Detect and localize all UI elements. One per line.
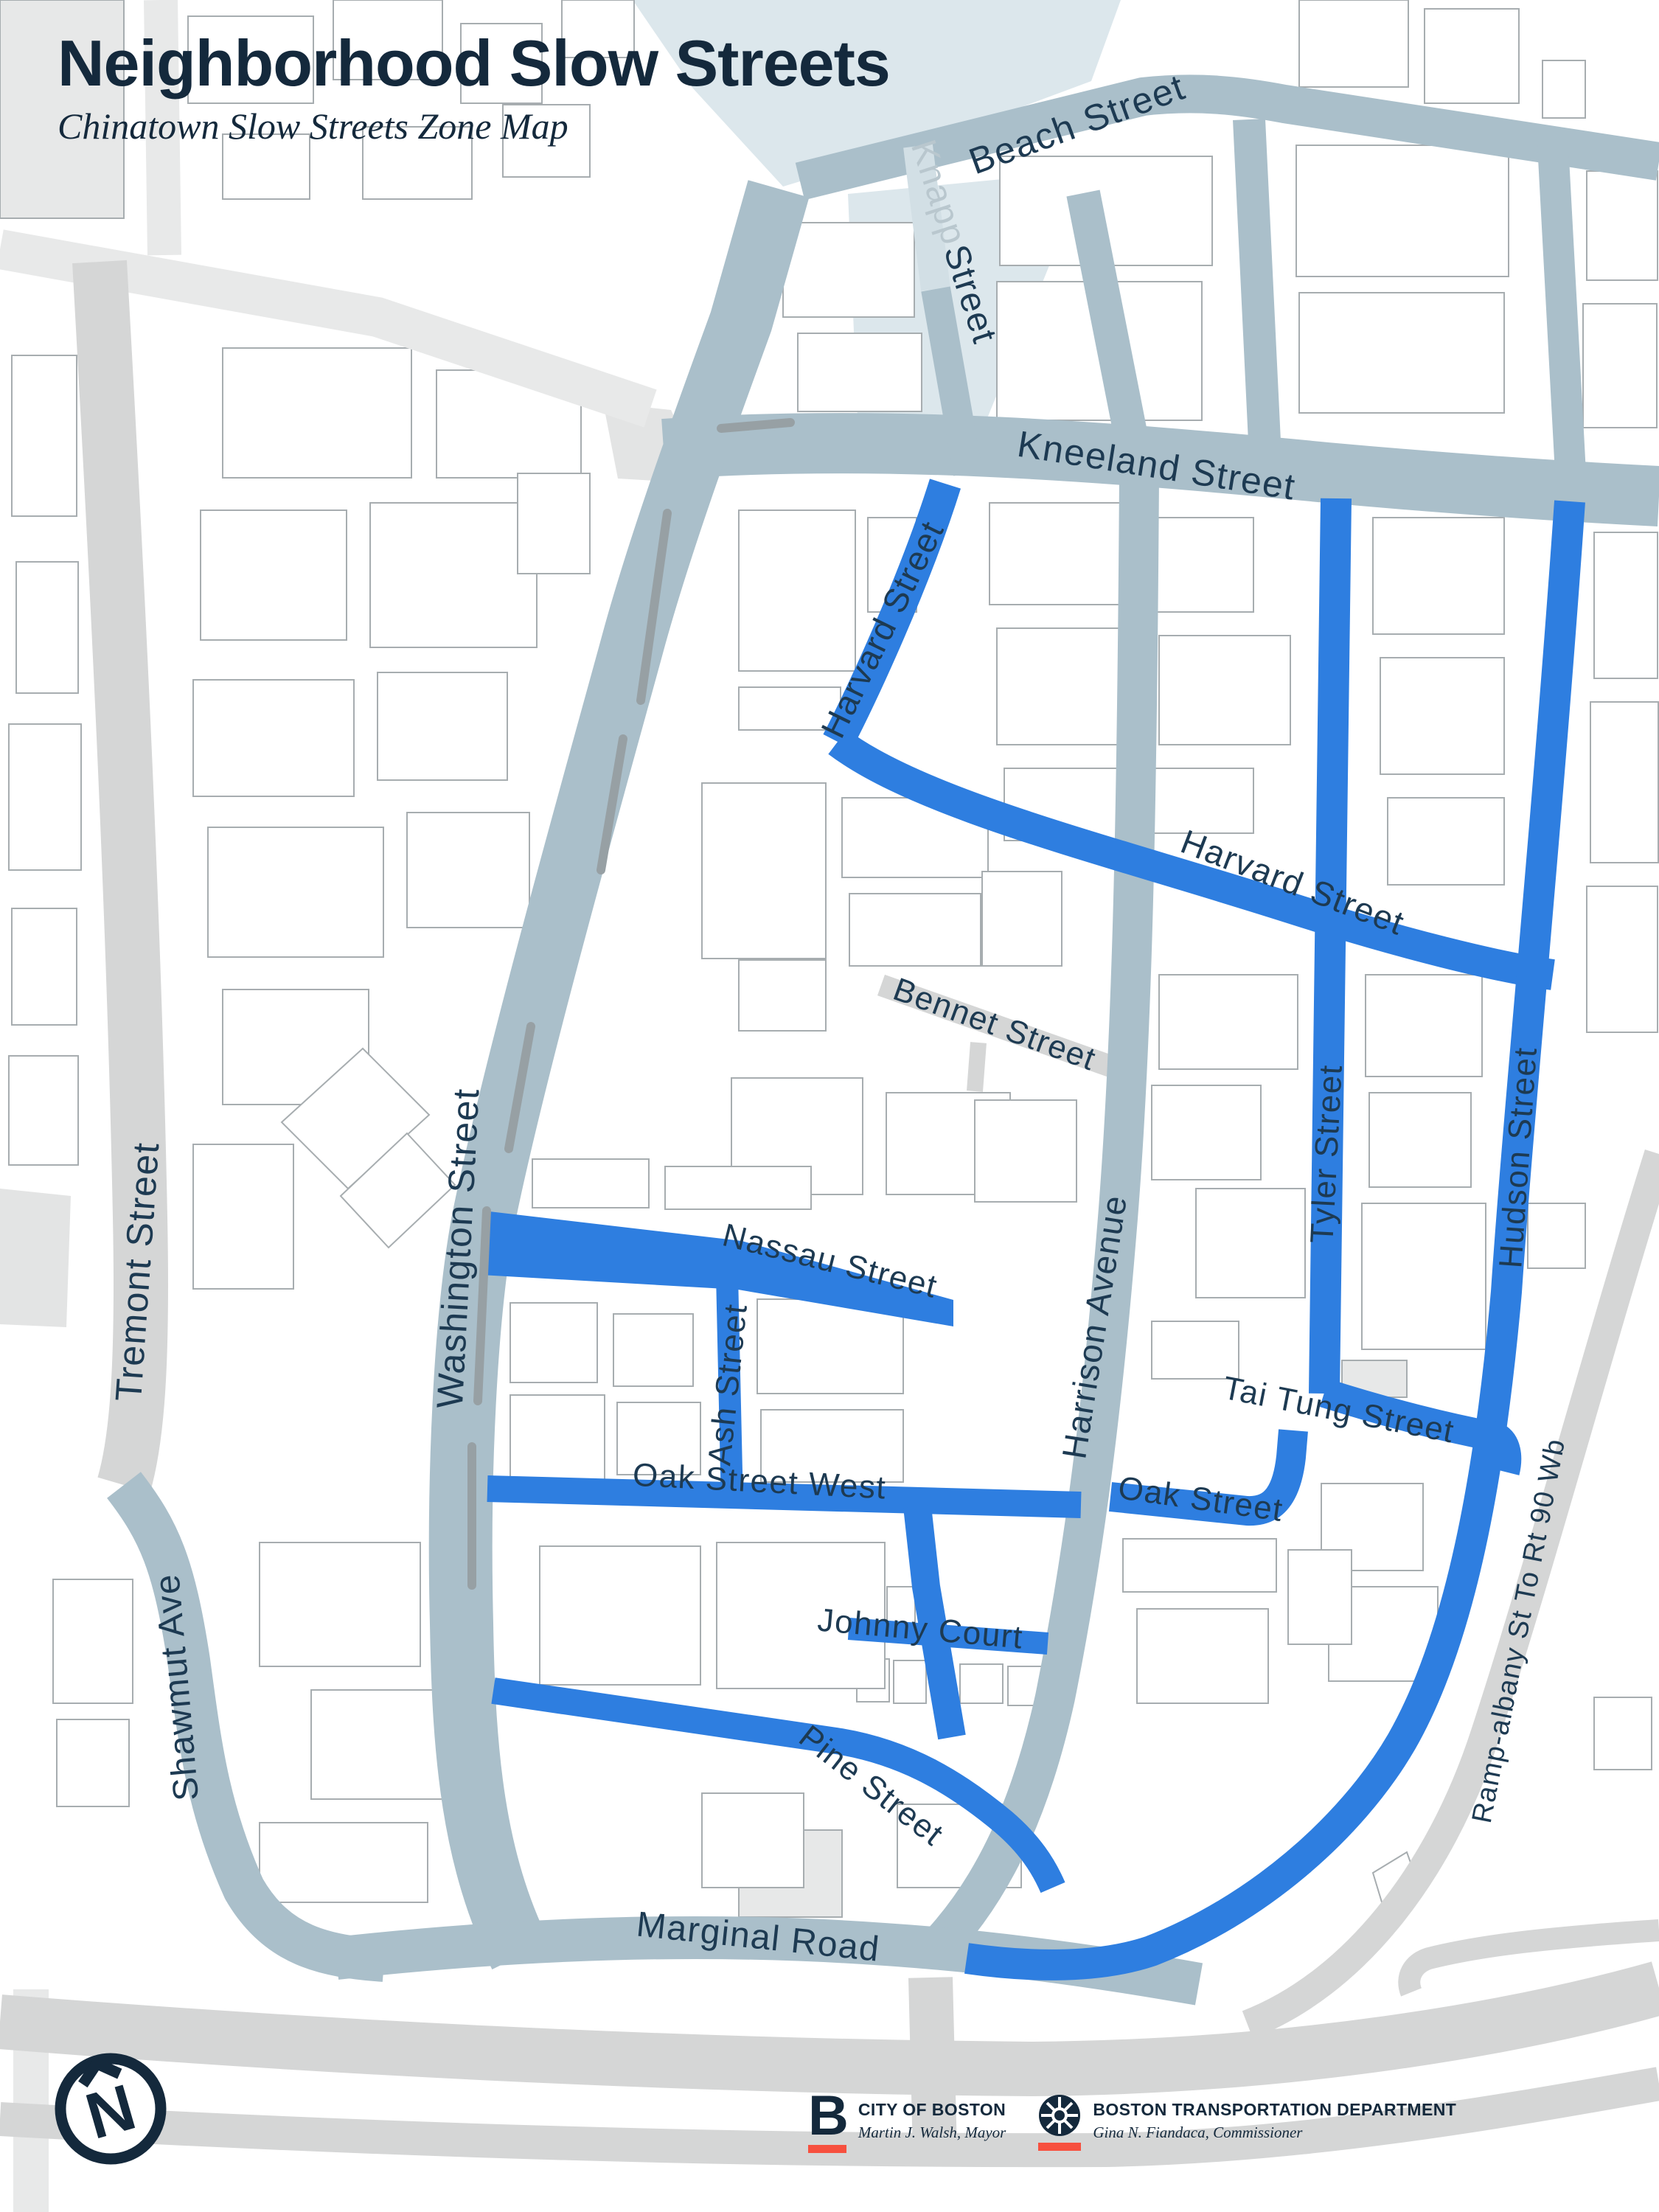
footer: B CITY OF BOSTON Martin J. Walsh, Mayor [808,2094,1456,2153]
boston-b-icon: B [808,2094,846,2153]
compass: N [50,2048,171,2173]
page-title: Neighborhood Slow Streets [58,29,890,97]
city-of-boston-logo: B CITY OF BOSTON Martin J. Walsh, Mayor [808,2094,1006,2153]
left-plaza [0,1189,71,1327]
beach-kneeland-link-1 [1249,119,1266,472]
commissioner-name: Gina N. Fiandaca, Commissioner [1093,2124,1456,2142]
page-subtitle: Chinatown Slow Streets Zone Map [58,105,890,147]
bennet-stub [975,1043,978,1091]
red-underline [808,2145,846,2153]
slow-streets-map: Beach StreetKnappStreetKneeland StreetHa… [0,0,1659,2212]
btd-name: BOSTON TRANSPORTATION DEPARTMENT [1093,2100,1456,2120]
poster-page: Beach StreetKnappStreetKneeland StreetHa… [0,0,1659,2212]
city-name: CITY OF BOSTON [858,2100,1006,2120]
wheel-icon [1038,2094,1081,2151]
north-arrow-icon: N [50,2048,171,2169]
tyler-street-road [1324,498,1336,1394]
mayor-name: Martin J. Walsh, Mayor [858,2124,1006,2142]
beach-kneeland-link-2 [1553,145,1571,487]
header: Neighborhood Slow Streets Chinatown Slow… [58,29,890,147]
boston-b-letter: B [808,2094,846,2139]
red-underline [1038,2143,1081,2151]
btd-logo: BOSTON TRANSPORTATION DEPARTMENT Gina N.… [1038,2094,1456,2153]
